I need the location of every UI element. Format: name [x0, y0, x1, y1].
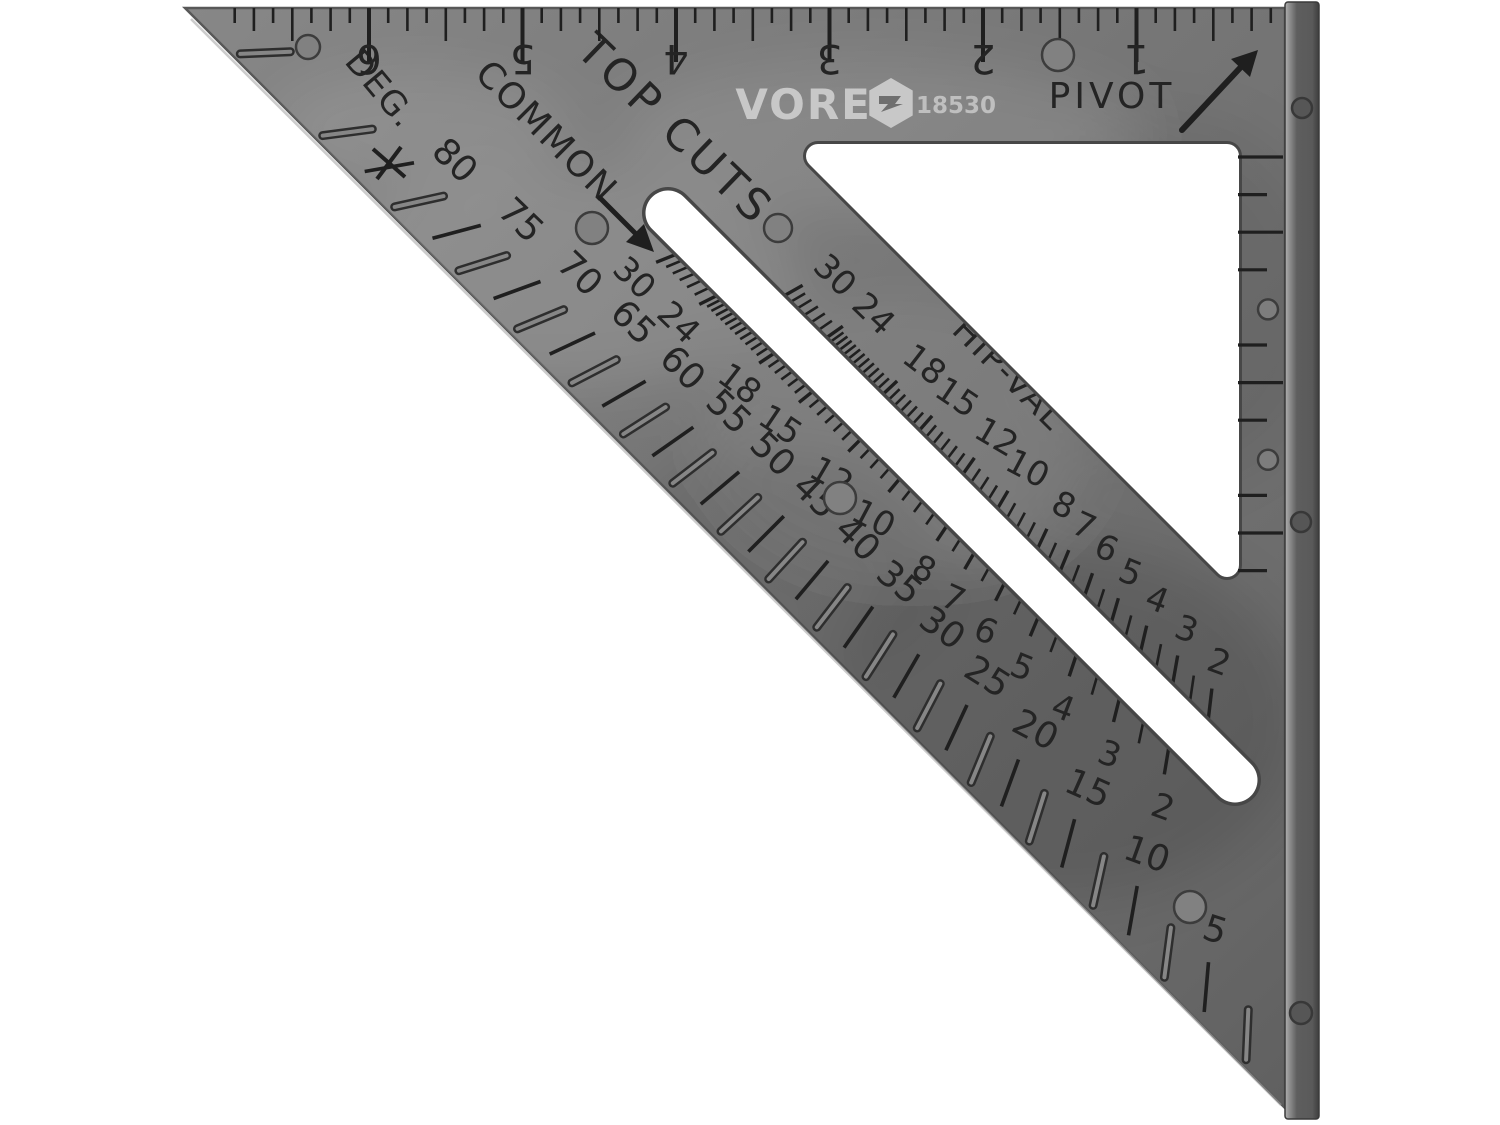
- flange-dimple: [1292, 98, 1312, 118]
- dimple-hole: [764, 214, 792, 242]
- deg-groove-inner: [240, 52, 290, 54]
- dimple-hole: [296, 35, 320, 59]
- pivot-label: PIVOT: [1049, 76, 1176, 117]
- inch-number: 4: [663, 35, 688, 81]
- flange-dimple: [1290, 1002, 1312, 1024]
- speed-square-photo: 8075706560555045403530252015105DEG.30241…: [0, 0, 1500, 1125]
- right-strip-hole: [1258, 450, 1278, 470]
- right-strip-hole: [1258, 299, 1278, 319]
- dimple-hole: [1042, 39, 1074, 71]
- inch-number: 6: [356, 35, 381, 81]
- dimple-hole: [1174, 891, 1206, 923]
- inch-number: 5: [510, 35, 535, 81]
- dimple-hole: [824, 482, 856, 514]
- speed-square-scene: 8075706560555045403530252015105DEG.30241…: [0, 0, 1500, 1125]
- brand-model: 18530: [916, 93, 996, 119]
- fence-flange: [1285, 2, 1319, 1119]
- inch-number: 1: [1124, 35, 1149, 81]
- deg-groove-inner: [1246, 1010, 1248, 1060]
- dimple-hole: [576, 212, 608, 244]
- inch-number: 2: [970, 35, 995, 81]
- flange-dimple: [1291, 512, 1311, 532]
- inch-number: 3: [817, 35, 842, 81]
